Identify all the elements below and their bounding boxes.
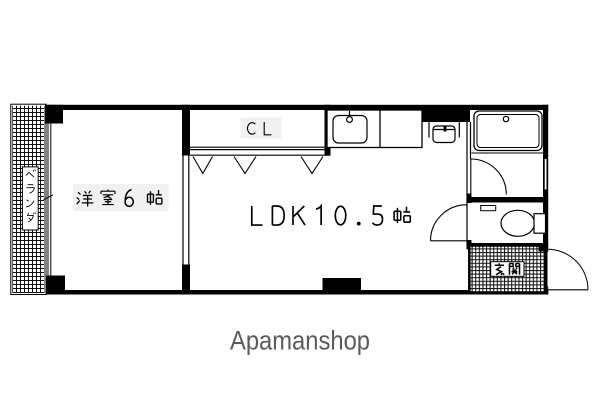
svg-text:Apamanshop: Apamanshop: [230, 326, 370, 356]
